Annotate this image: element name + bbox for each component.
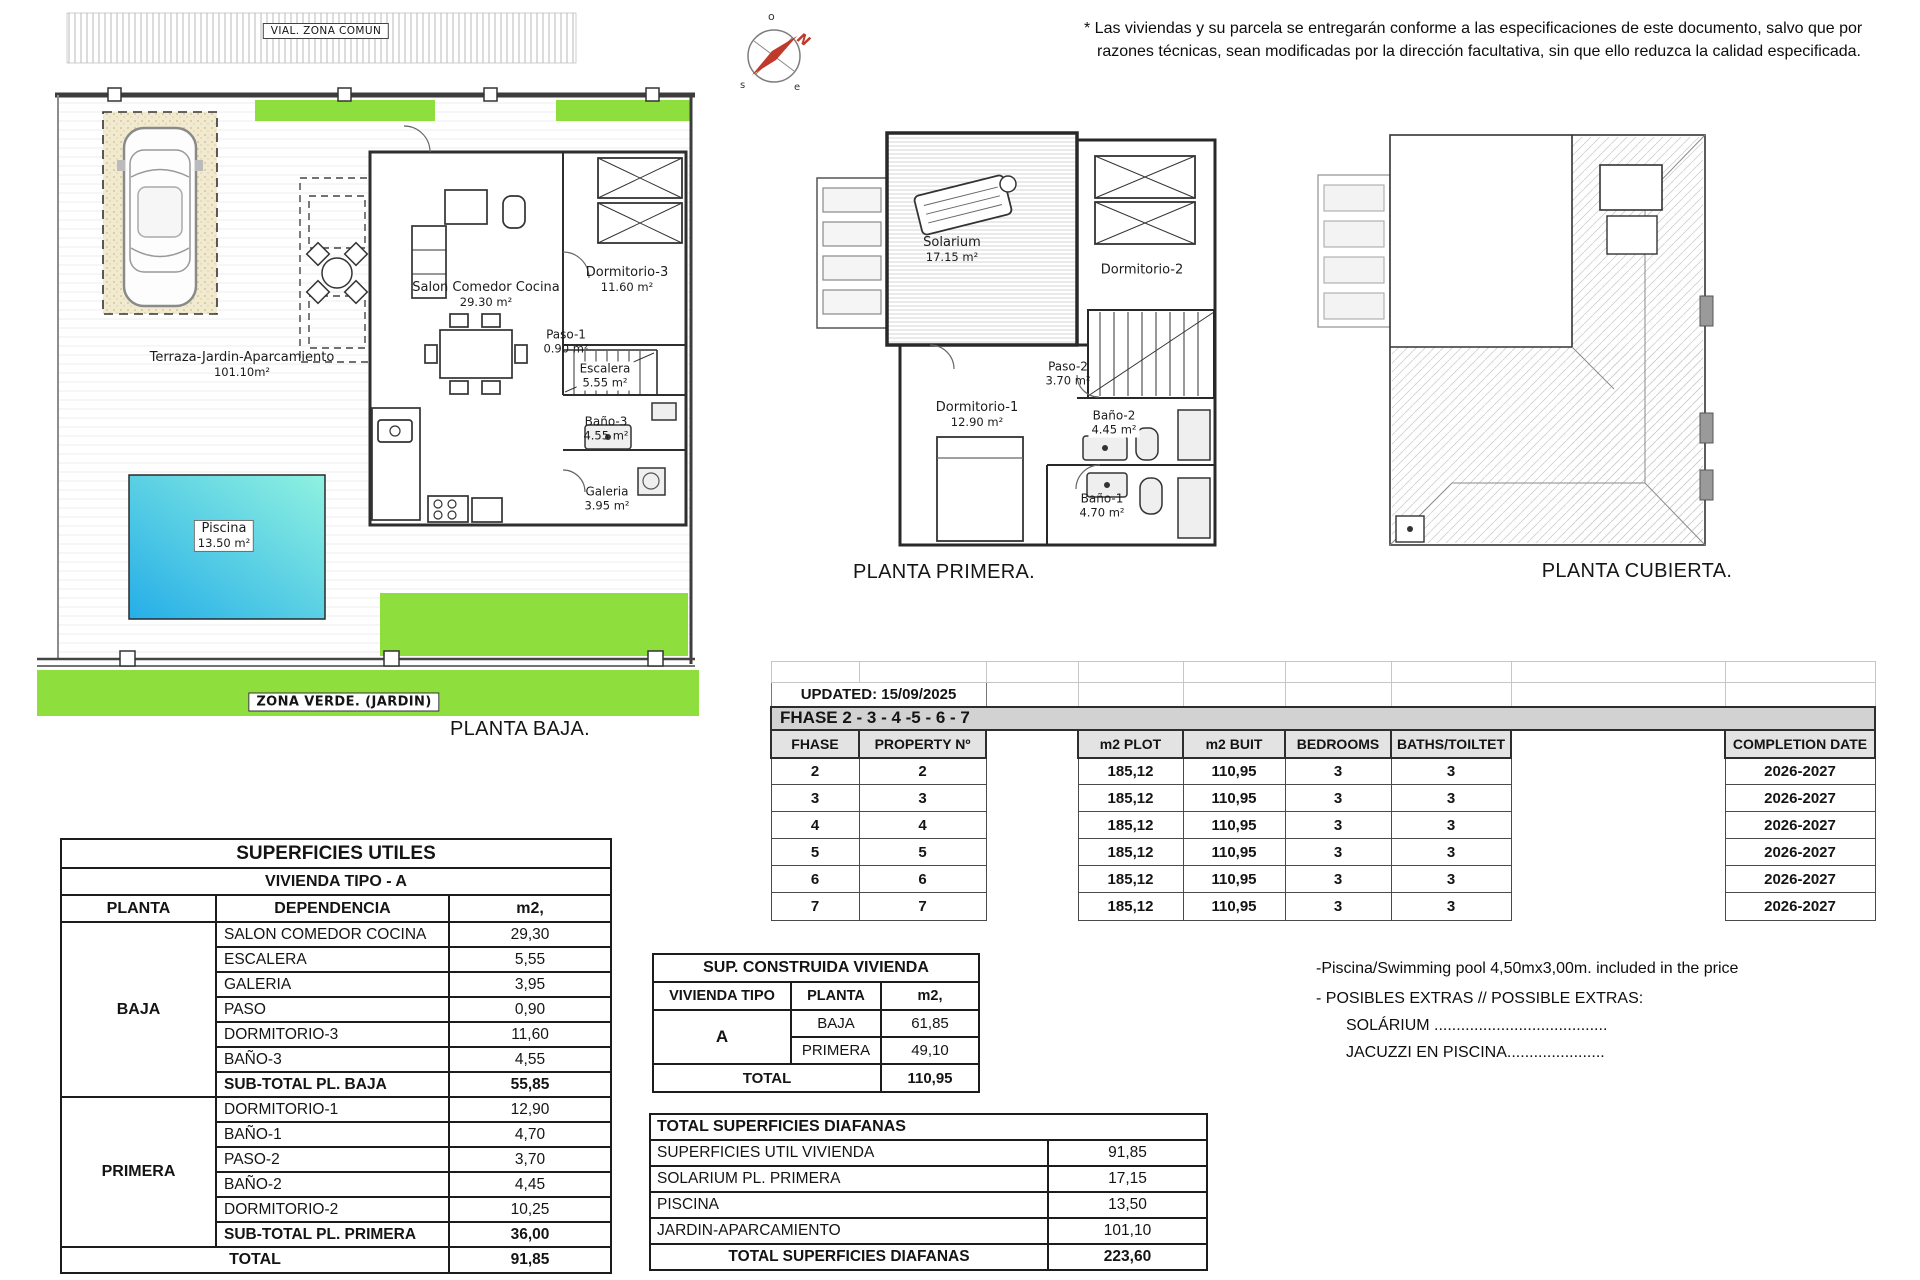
cell-label: PRIMERA [791,1037,881,1064]
table-title: TOTAL SUPERFICIES DIAFANAS [650,1114,1207,1140]
room-label-dormitorio-3: Dormitorio-3 11.60 m² [586,266,669,294]
cell-label: PISCINA [650,1192,1048,1218]
cell-built: 110,95 [1183,758,1285,785]
updated-cell: UPDATED: 15/09/2025 [771,683,986,707]
room-label-dormitorio-1: Dormitorio-1 12.90 m² [936,401,1019,429]
superficies-utiles-table: SUPERFICIES UTILES VIVIENDA TIPO - A PLA… [60,838,612,1274]
cell-value: 13,50 [1048,1192,1207,1218]
cell-label: DORMITORIO-3 [216,1022,449,1047]
cell-plot: 185,12 [1078,893,1183,921]
table-row: 3 3 185,12 110,95 3 3 2026-2027 [771,785,1875,812]
cell-value: 4,70 [449,1122,611,1147]
cell-label: TOTAL [653,1064,881,1092]
room-name: Baño-3 [583,415,628,429]
table-header-row: PLANTA DEPENDENCIA m2, [61,895,611,922]
note-pool: -Piscina/Swimming pool 4,50mx3,00m. incl… [1316,960,1738,978]
cell-fhase: 7 [771,893,859,921]
room-label-salon: Salon Comedor Cocina 29.30 m² [412,281,560,309]
room-label-bano-3: Baño-3 4.55 m² [583,415,628,442]
table-total-row: TOTAL 110,95 [653,1064,979,1092]
cell-label: GALERIA [216,972,449,997]
room-name: Piscina [198,522,250,537]
col-header-m2: m2, [881,982,979,1010]
plan-title-primera: PLANTA PRIMERA. [853,561,1035,584]
note-jacuzzi: JACUZZI EN PISCINA...................... [1316,1044,1738,1062]
cell-value: 4,55 [449,1047,611,1072]
cell-label: SUB-TOTAL PL. PRIMERA [216,1222,449,1247]
cell-label: BAÑO-3 [216,1047,449,1072]
cell-label: ESCALERA [216,947,449,972]
cell-label: BAÑO-2 [216,1172,449,1197]
disclaimer-note: * Las viviendas y su parcela se entregar… [1084,17,1862,63]
col-header-bedrooms: BEDROOMS [1285,730,1391,758]
room-label-solarium: Solarium 17.15 m² [923,236,981,264]
sup-construida-table: SUP. CONSTRUIDA VIVIENDA VIVIENDA TIPO P… [652,953,980,1093]
col-header-built: m2 BUIT [1183,730,1285,758]
cell-bedrooms: 3 [1285,839,1391,866]
col-header-dependencia: DEPENDENCIA [216,895,449,922]
cell-plot: 185,12 [1078,758,1183,785]
room-label-escalera: Escalera 5.55 m² [577,361,634,390]
cell-label: TOTAL [61,1247,449,1273]
room-area: 17.15 m² [923,251,981,264]
svg-text:o: o [768,10,775,23]
cell-fhase: 4 [771,812,859,839]
floor-plan-document: o N s e * Las viviendas y su parcela se … [0,0,1920,1280]
room-name: Galeria [584,485,629,499]
room-area: 11.60 m² [586,281,669,294]
cell-built: 110,95 [1183,812,1285,839]
room-name: Solarium [923,236,981,251]
room-name: Dormitorio-2 [1101,264,1184,279]
car-icon [117,128,203,306]
room-name: Dormitorio-3 [586,266,669,281]
col-header-baths: BATHS/TOILTET [1391,730,1511,758]
disclaimer-line-2: razones técnicas, sean modificadas por l… [1084,40,1862,63]
table-row [771,662,1875,683]
plan-primera [817,133,1215,545]
room-name: Salon Comedor Cocina [412,281,560,296]
cell-bedrooms: 3 [1285,893,1391,921]
svg-text:e: e [794,82,800,93]
table-row: 4 4 185,12 110,95 3 3 2026-2027 [771,812,1875,839]
cell-label: BAÑO-1 [216,1122,449,1147]
room-area: 29.30 m² [412,296,560,309]
cell-bedrooms: 3 [1285,758,1391,785]
cell-plot: 185,12 [1078,785,1183,812]
terrace-slats [817,178,887,328]
plan-title-cubierta: PLANTA CUBIERTA. [1542,560,1732,583]
room-name: Paso-1 [543,328,588,342]
room-label-dormitorio-2: Dormitorio-2 [1101,264,1184,279]
cell-fhase: 2 [771,758,859,785]
cell-value: 101,10 [1048,1218,1207,1244]
cell-bedrooms: 3 [1285,785,1391,812]
col-header-m2: m2, [449,895,611,922]
svg-text:s: s [740,80,745,91]
cell-value: 91,85 [1048,1140,1207,1166]
room-label-galeria: Galeria 3.95 m² [584,485,629,512]
cell-fhase: 5 [771,839,859,866]
room-name: Baño-1 [1079,492,1124,506]
table-row: UPDATED: 15/09/2025 [771,683,1875,707]
room-area: 3.70 m² [1045,374,1090,387]
cell-label: SUPERFICIES UTIL VIVIENDA [650,1140,1048,1166]
note-extras: - POSIBLES EXTRAS // POSSIBLE EXTRAS: [1316,990,1738,1008]
table-row: 2 2 185,12 110,95 3 3 2026-2027 [771,758,1875,785]
cell-value: 223,60 [1048,1244,1207,1270]
col-header-completion: COMPLETION DATE [1725,730,1875,758]
cell-baths: 3 [1391,893,1511,921]
cell-bedrooms: 3 [1285,866,1391,893]
cell-completion: 2026-2027 [1725,893,1875,921]
cell-label: SALON COMEDOR COCINA [216,922,449,947]
cell-baths: 3 [1391,758,1511,785]
col-header-fhase: FHASE [771,730,859,758]
room-label-bano-1: Baño-1 4.70 m² [1079,492,1124,519]
cell-value: 61,85 [881,1010,979,1037]
table-row: SUPERFICIES UTIL VIVIENDA 91,85 [650,1140,1207,1166]
cell-value: 55,85 [449,1072,611,1097]
cell-value: 4,45 [449,1172,611,1197]
room-label-terraza: Terraza-Jardin-Aparcamiento 101.10m² [150,351,335,379]
cell-completion: 2026-2027 [1725,839,1875,866]
diafanas-table: TOTAL SUPERFICIES DIAFANAS SUPERFICIES U… [649,1113,1208,1271]
plan-title-baja: PLANTA BAJA. [450,718,590,741]
table-row: 7 7 185,12 110,95 3 3 2026-2027 [771,893,1875,921]
table-subtitle: VIVIENDA TIPO - A [61,868,611,895]
room-area: 3.95 m² [584,499,629,512]
room-label-bano-2: Baño-2 4.45 m² [1088,408,1139,437]
disclaimer-line-1: * Las viviendas y su parcela se entregar… [1084,17,1862,40]
cell-value: 17,15 [1048,1166,1207,1192]
compass-icon: o N s e [740,10,813,93]
cell-value: 91,85 [449,1247,611,1273]
room-area: 101.10m² [150,366,335,379]
cell-value: 3,70 [449,1147,611,1172]
cell-label: DORMITORIO-1 [216,1097,449,1122]
table-row: SOLARIUM PL. PRIMERA 17,15 [650,1166,1207,1192]
col-header-property: PROPERTY Nº [859,730,986,758]
col-header-tipo: VIVIENDA TIPO [653,982,791,1010]
room-area: 0.90 m² [543,342,588,355]
table-total-row: TOTAL SUPERFICIES DIAFANAS 223,60 [650,1244,1207,1270]
table-title: SUP. CONSTRUIDA VIVIENDA [653,954,979,982]
room-name: Dormitorio-1 [936,401,1019,416]
cell-label: PASO [216,997,449,1022]
cell-value: 10,25 [449,1197,611,1222]
table-row: 5 5 185,12 110,95 3 3 2026-2027 [771,839,1875,866]
room-name: Paso-2 [1045,360,1090,374]
cell-value: 110,95 [881,1064,979,1092]
table-header-row: FHASE PROPERTY Nº m2 PLOT m2 BUIT BEDROO… [771,730,1875,758]
room-area: 13.50 m² [198,537,250,550]
cell-value: 0,90 [449,997,611,1022]
table-total-row: TOTAL 91,85 [61,1247,611,1273]
room-name: Terraza-Jardin-Aparcamiento [150,351,335,366]
cell-plot: 185,12 [1078,866,1183,893]
vial-label: VIAL. ZONA COMUN [263,23,389,39]
table-row: 6 6 185,12 110,95 3 3 2026-2027 [771,866,1875,893]
table-row: FHASE 2 - 3 - 4 -5 - 6 - 7 [771,707,1875,730]
room-label-paso-2: Paso-2 3.70 m² [1045,360,1090,387]
cell-property: 5 [859,839,986,866]
table-row: PRIMERA DORMITORIO-1 12,90 [61,1097,611,1122]
cell-property: 6 [859,866,986,893]
cell-property: 4 [859,812,986,839]
room-area: 4.55 m² [583,429,628,442]
notes-block: -Piscina/Swimming pool 4,50mx3,00m. incl… [1316,960,1738,1071]
room-area: 5.55 m² [580,376,631,389]
table-row: JARDIN-APARCAMIENTO 101,10 [650,1218,1207,1244]
cell-label: BAJA [791,1010,881,1037]
cell-tipo: A [653,1010,791,1064]
room-name: Baño-2 [1091,409,1136,423]
room-name: Escalera [580,362,631,376]
cell-plot: 185,12 [1078,839,1183,866]
cell-value: 29,30 [449,922,611,947]
group-primera: PRIMERA [61,1097,216,1247]
phase-table: UPDATED: 15/09/2025 FHASE 2 - 3 - 4 -5 -… [770,661,1876,921]
zona-verde-label: ZONA VERDE. (JARDIN) [248,693,439,712]
cell-property: 7 [859,893,986,921]
table-title: SUPERFICIES UTILES [61,839,611,868]
cell-baths: 3 [1391,785,1511,812]
house-baja [370,126,686,525]
cell-label: SOLARIUM PL. PRIMERA [650,1166,1048,1192]
cell-completion: 2026-2027 [1725,785,1875,812]
cell-plot: 185,12 [1078,812,1183,839]
room-label-paso-1: Paso-1 0.90 m² [543,328,588,355]
plan-cubierta [1318,135,1713,545]
table-row: PISCINA 13,50 [650,1192,1207,1218]
cell-baths: 3 [1391,866,1511,893]
cell-value: 12,90 [449,1097,611,1122]
cell-fhase: 3 [771,785,859,812]
room-label-piscina: Piscina 13.50 m² [194,520,254,552]
cell-completion: 2026-2027 [1725,758,1875,785]
room-area: 12.90 m² [936,416,1019,429]
cell-built: 110,95 [1183,866,1285,893]
cell-completion: 2026-2027 [1725,866,1875,893]
cell-baths: 3 [1391,812,1511,839]
cell-value: 5,55 [449,947,611,972]
stairs-primera [1088,310,1214,398]
cell-value: 3,95 [449,972,611,997]
cell-completion: 2026-2027 [1725,812,1875,839]
cell-property: 2 [859,758,986,785]
cell-label: PASO-2 [216,1147,449,1172]
cell-value: 49,10 [881,1037,979,1064]
cell-value: 36,00 [449,1222,611,1247]
roof-slats [1318,175,1390,327]
col-header-planta: PLANTA [791,982,881,1010]
cell-built: 110,95 [1183,785,1285,812]
cell-built: 110,95 [1183,893,1285,921]
room-area: 4.70 m² [1079,506,1124,519]
cell-label: TOTAL SUPERFICIES DIAFANAS [650,1244,1048,1270]
table-row: A BAJA 61,85 [653,1010,979,1037]
cell-fhase: 6 [771,866,859,893]
cell-label: SUB-TOTAL PL. BAJA [216,1072,449,1097]
table-row: BAJA SALON COMEDOR COCINA 29,30 [61,922,611,947]
cell-label: JARDIN-APARCAMIENTO [650,1218,1048,1244]
phase-band: FHASE 2 - 3 - 4 -5 - 6 - 7 [771,707,1875,730]
cell-property: 3 [859,785,986,812]
group-baja: BAJA [61,922,216,1097]
note-solarium: SOLÁRIUM ...............................… [1316,1017,1738,1035]
col-header-plot: m2 PLOT [1078,730,1183,758]
cell-bedrooms: 3 [1285,812,1391,839]
cell-value: 11,60 [449,1022,611,1047]
table-header-row: VIVIENDA TIPO PLANTA m2, [653,982,979,1010]
col-header-planta: PLANTA [61,895,216,922]
cell-baths: 3 [1391,839,1511,866]
cell-label: DORMITORIO-2 [216,1197,449,1222]
cell-built: 110,95 [1183,839,1285,866]
room-area: 4.45 m² [1091,423,1136,436]
